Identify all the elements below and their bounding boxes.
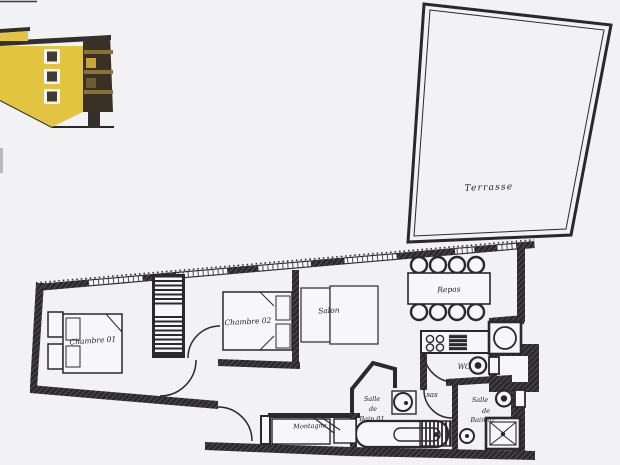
scanned-floor-plan-page: Terrasse bbox=[0, 0, 620, 465]
svg-text:Bain 01: Bain 01 bbox=[358, 415, 384, 423]
svg-text:Salle: Salle bbox=[364, 395, 380, 403]
nightstand bbox=[48, 312, 63, 337]
nightstand bbox=[48, 344, 63, 369]
svg-text:Salle: Salle bbox=[472, 396, 488, 404]
pillow bbox=[276, 324, 290, 348]
dining-chair bbox=[411, 257, 427, 273]
floor-plan-drawing: Terrasse bbox=[0, 0, 620, 465]
room-label-terrasse: Terrasse bbox=[464, 182, 513, 194]
pillow bbox=[276, 296, 290, 320]
montagne-door-leaf bbox=[261, 416, 270, 444]
toilet-wc bbox=[470, 357, 499, 374]
svg-text:de: de bbox=[482, 407, 490, 415]
svg-text:Bain 02: Bain 02 bbox=[469, 416, 495, 424]
facade-windows bbox=[44, 49, 60, 104]
room-label-salon: Salon bbox=[318, 305, 340, 315]
scan-edge-mark bbox=[0, 148, 3, 173]
sofa bbox=[301, 286, 378, 344]
dining-chair bbox=[468, 304, 484, 320]
support-column bbox=[88, 112, 100, 128]
radiator bbox=[420, 421, 451, 446]
dining-chair bbox=[449, 257, 465, 273]
dining-chair bbox=[430, 304, 446, 320]
washbasin-sdb02 bbox=[460, 429, 474, 443]
wall-chambre02-salon bbox=[292, 270, 299, 366]
pillow bbox=[66, 346, 80, 367]
oven bbox=[449, 334, 467, 351]
dining-chair bbox=[430, 257, 446, 273]
dining-chair bbox=[449, 304, 465, 320]
toilet-tank bbox=[489, 357, 499, 374]
toilet-tank bbox=[515, 390, 525, 407]
wardrobe bbox=[152, 274, 185, 358]
dining-chair bbox=[468, 257, 484, 273]
dining-chair bbox=[411, 304, 427, 320]
washbasin-sdb01 bbox=[392, 391, 416, 414]
room-label-sas: sas bbox=[426, 391, 438, 399]
svg-text:de: de bbox=[369, 405, 377, 413]
wall-montagne-top bbox=[268, 413, 360, 418]
wall-sdb02-left bbox=[452, 384, 458, 452]
right-wall-upper bbox=[517, 246, 525, 322]
toilet-sdb02 bbox=[496, 390, 525, 407]
room-label-repas: Repas bbox=[436, 285, 461, 295]
kitchen-sink bbox=[489, 322, 521, 354]
room-label-montagne: Montagne bbox=[292, 421, 327, 430]
room-label-wc: WC bbox=[458, 363, 471, 371]
